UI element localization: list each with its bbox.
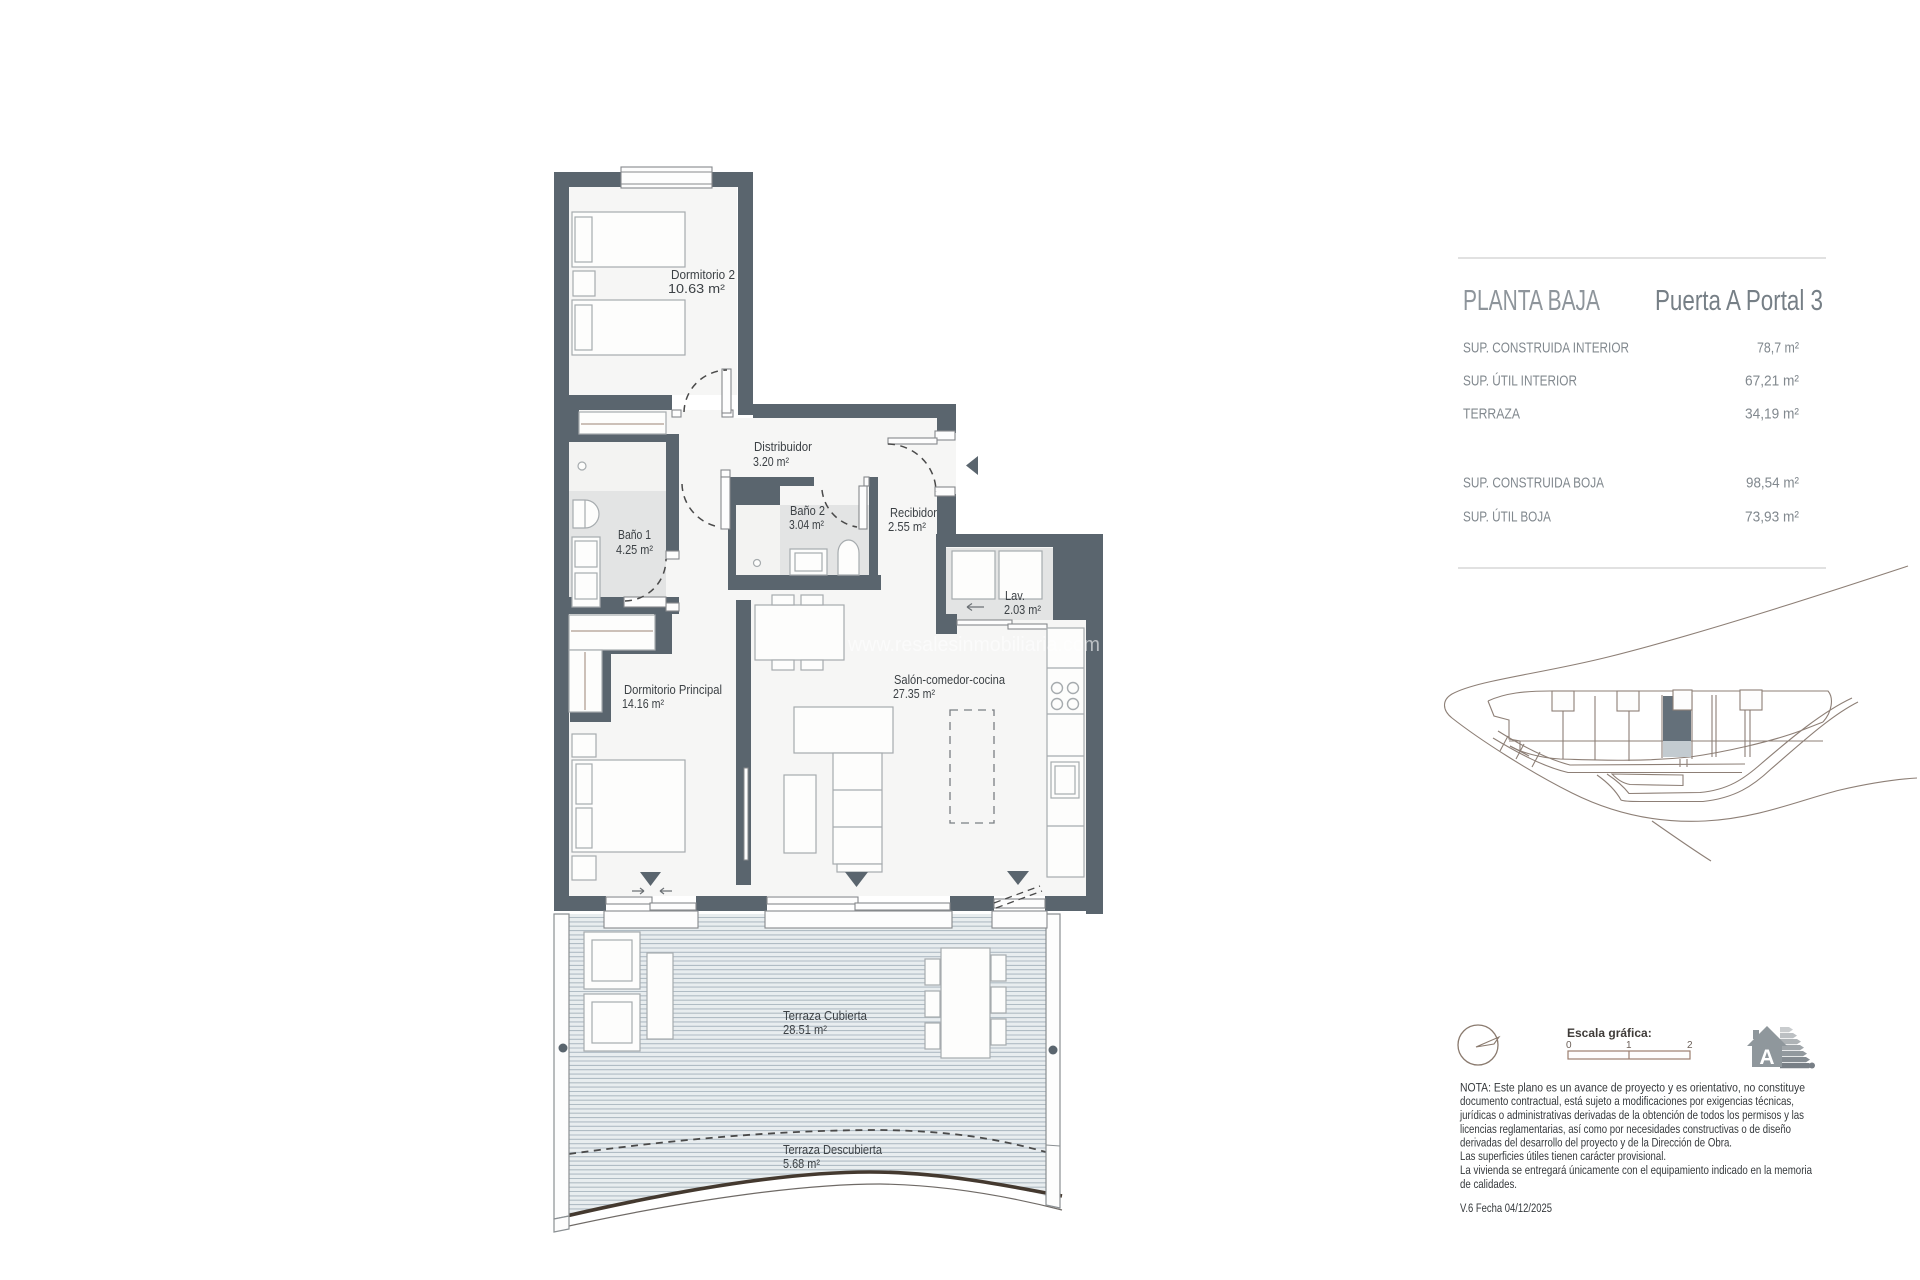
svg-text:14.16 m²: 14.16 m² (622, 696, 665, 711)
svg-text:Las superficies útiles tienen: Las superficies útiles tienen carácter p… (1460, 1149, 1666, 1163)
svg-text:0: 0 (1566, 1040, 1572, 1051)
svg-text:V.6 Fecha 04/12/2025: V.6 Fecha 04/12/2025 (1460, 1201, 1552, 1215)
svg-text:SUP. ÚTIL INTERIOR: SUP. ÚTIL INTERIOR (1463, 373, 1577, 390)
svg-text:Dormitorio Principal: Dormitorio Principal (624, 682, 722, 697)
svg-text:SUP. CONSTRUIDA BOJA: SUP. CONSTRUIDA BOJA (1463, 475, 1604, 492)
svg-text:Dormitorio 2: Dormitorio 2 (671, 267, 735, 282)
svg-text:78,7 m²: 78,7 m² (1757, 340, 1799, 357)
svg-text:Escala gráfica:: Escala gráfica: (1567, 1026, 1652, 1040)
svg-text:2: 2 (1687, 1040, 1693, 1051)
svg-text:TERRAZA: TERRAZA (1463, 406, 1520, 423)
svg-text:4.25 m²: 4.25 m² (616, 542, 654, 557)
svg-text:Salón-comedor-cocina: Salón-comedor-cocina (894, 672, 1006, 687)
svg-text:73,93 m²: 73,93 m² (1745, 509, 1799, 526)
svg-text:98,54 m²: 98,54 m² (1746, 475, 1799, 492)
svg-text:Baño 2: Baño 2 (790, 503, 825, 518)
svg-text:67,21 m²: 67,21 m² (1745, 373, 1799, 390)
svg-text:PLANTA BAJA: PLANTA BAJA (1463, 285, 1600, 317)
svg-text:2.55 m²: 2.55 m² (888, 519, 927, 534)
svg-text:www.resalesinmobiliaria.com: www.resalesinmobiliaria.com (847, 634, 1100, 656)
svg-text:5.68 m²: 5.68 m² (783, 1156, 821, 1171)
svg-text:Lav.: Lav. (1005, 588, 1025, 603)
svg-text:1: 1 (1626, 1040, 1632, 1051)
svg-text:de calidades.: de calidades. (1460, 1177, 1517, 1191)
svg-text:3.04 m²: 3.04 m² (789, 517, 825, 532)
svg-text:Recibidor: Recibidor (890, 505, 938, 520)
svg-text:Terraza Descubierta: Terraza Descubierta (783, 1142, 883, 1157)
svg-text:NOTA: Este plano es un avance: NOTA: Este plano es un avance de proyect… (1460, 1081, 1805, 1095)
svg-text:2.03 m²: 2.03 m² (1004, 602, 1042, 617)
svg-text:34,19 m²: 34,19 m² (1745, 406, 1799, 423)
svg-text:3.20 m²: 3.20 m² (753, 454, 790, 469)
svg-text:licencias reglamentarias, así: licencias reglamentarias, así como por n… (1460, 1122, 1791, 1136)
svg-text:documento contractual, está su: documento contractual, está sujeto a mod… (1460, 1094, 1794, 1108)
svg-text:derivadas del desarrollo del p: derivadas del desarrollo del proyecto y … (1460, 1136, 1732, 1150)
svg-text:Baño 1: Baño 1 (618, 527, 651, 542)
svg-text:Terraza Cubierta: Terraza Cubierta (783, 1008, 868, 1023)
svg-text:SUP. ÚTIL BOJA: SUP. ÚTIL BOJA (1463, 509, 1551, 526)
svg-text:A: A (1759, 1046, 1774, 1069)
svg-text:SUP. CONSTRUIDA INTERIOR: SUP. CONSTRUIDA INTERIOR (1463, 340, 1629, 357)
svg-text:28.51 m²: 28.51 m² (783, 1022, 828, 1037)
svg-text:27.35 m²: 27.35 m² (893, 686, 936, 701)
svg-text:Puerta A Portal 3: Puerta A Portal 3 (1655, 285, 1823, 317)
svg-text:La vivienda se entregará única: La vivienda se entregará únicamente con … (1460, 1163, 1812, 1177)
svg-text:Distribuidor: Distribuidor (754, 439, 813, 454)
svg-text:jurídicas o administrativas de: jurídicas o administrativas derivadas de… (1459, 1108, 1804, 1122)
svg-text:10.63 m²: 10.63 m² (668, 281, 726, 296)
